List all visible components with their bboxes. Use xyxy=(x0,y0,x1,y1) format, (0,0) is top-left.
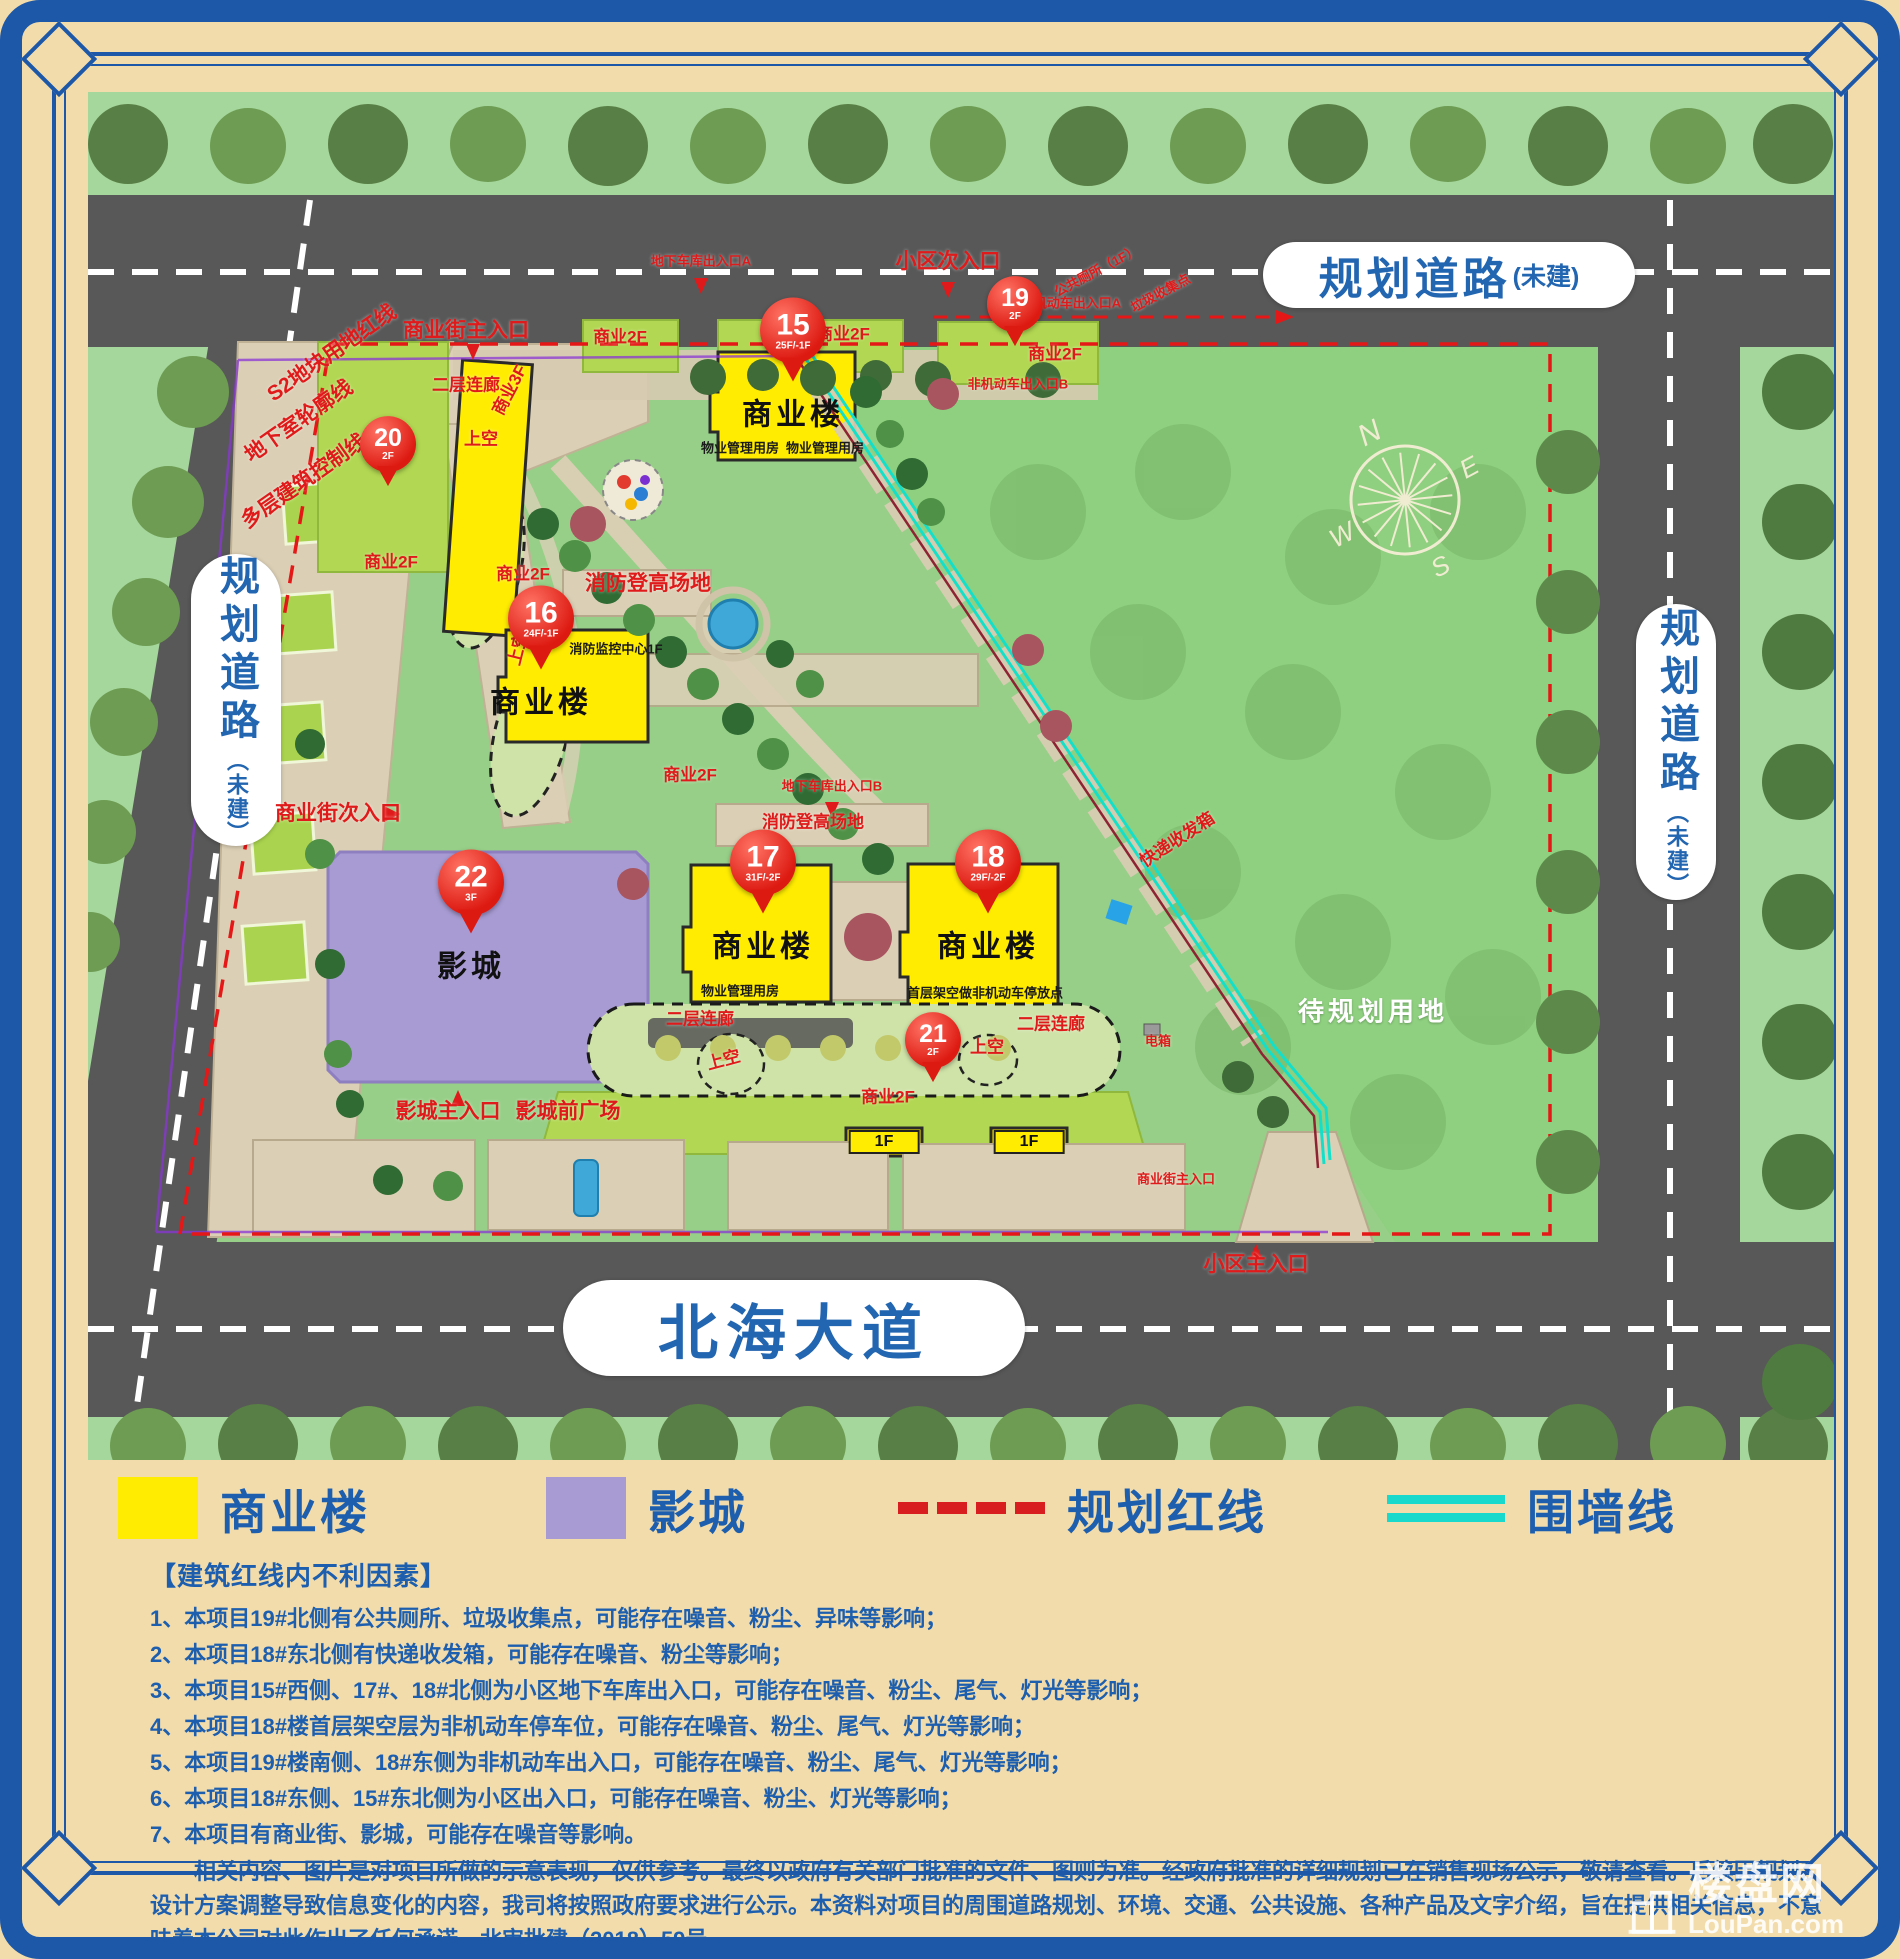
floor-tag: 1F xyxy=(994,1130,1065,1154)
road-label-left: 规划道路 （未建） xyxy=(191,554,281,846)
pin-balloon: 192F xyxy=(987,276,1043,332)
building-pin-21[interactable]: 212F xyxy=(905,1012,961,1090)
building-pin-16[interactable]: 1624F/-1F 商业楼 xyxy=(490,585,592,721)
building-pin-22[interactable]: 223F 影城 xyxy=(437,849,505,985)
building-name: 商业楼 xyxy=(937,921,1039,965)
map-label: 二层连廊 xyxy=(432,371,500,396)
legend-wallline-icon xyxy=(1387,1495,1505,1522)
pin-balloon: 1731F/-2F xyxy=(730,829,796,895)
building-name: 商业楼 xyxy=(742,389,844,433)
map-label: 小区次入口 xyxy=(896,245,1001,275)
pin-balloon: 223F xyxy=(438,849,504,915)
pin-balloon: 1624F/-1F xyxy=(508,585,574,651)
map-label: 物业管理用房 xyxy=(786,438,864,457)
map-label: 小区主入口 xyxy=(1204,1248,1309,1278)
frame-corner-ornament xyxy=(21,21,97,97)
map-label: 商业2F xyxy=(496,560,550,585)
legend-swatch-commercial xyxy=(118,1477,198,1539)
map-label: 非机动车出入口B xyxy=(968,374,1068,393)
legend-redline-icon xyxy=(898,1502,1045,1514)
pin-balloon: 212F xyxy=(905,1012,961,1068)
note-item: 3、本项目15#西侧、17#、18#北侧为小区地下车库出入口，可能存在噪音、粉尘… xyxy=(150,1673,1830,1709)
note-item: 2、本项目18#东北侧有快递收发箱，可能存在噪音、粉尘等影响； xyxy=(150,1637,1830,1673)
road-label-bottom: 北海大道 xyxy=(563,1280,1025,1376)
legend-swatch-cinema xyxy=(546,1477,626,1539)
building-name: 商业楼 xyxy=(712,921,814,965)
pin-balloon: 1829F/-2F xyxy=(955,829,1021,895)
map-label: 商业街次入口 xyxy=(275,797,401,827)
map-label: 二层连廊 xyxy=(666,1005,734,1030)
map-label: 上空 xyxy=(970,1033,1004,1058)
loupan-logo-icon xyxy=(1626,1885,1678,1937)
watermark: 楼盘网 LouPan.com xyxy=(1626,1863,1844,1937)
disclaimer: 相关内容、图片是对项目所做的示意表现，仅供参考。最终以政府有关部门批准的文件、图… xyxy=(150,1855,1830,1957)
pond xyxy=(709,600,757,648)
map-label: 商业街主入口 xyxy=(1137,1169,1215,1188)
note-item: 1、本项目19#北侧有公共厕所、垃圾收集点，可能存在噪音、粉尘、异味等影响； xyxy=(150,1601,1830,1637)
map-label: 上空 xyxy=(464,425,498,450)
map-label: 电箱 xyxy=(1145,1031,1171,1050)
pin-balloon: 202F xyxy=(360,416,416,472)
frame-corner-ornament xyxy=(21,1830,97,1906)
map-label: 商业2F xyxy=(364,548,418,573)
note-item: 5、本项目19#楼南侧、18#东侧为非机动车出入口，可能存在噪音、粉尘、尾气、灯… xyxy=(150,1745,1830,1781)
building-pin-17[interactable]: 1731F/-2F 商业楼 xyxy=(712,829,814,965)
map-label: 物业管理用房 xyxy=(701,438,779,457)
legend-label: 围墙线 xyxy=(1527,1474,1677,1543)
building-name: 影城 xyxy=(437,941,505,985)
road-label-top: 规划道路 (未建) xyxy=(1263,242,1635,308)
road-label-right: 规划道路 （未建） xyxy=(1636,604,1716,900)
note-item: 7、本项目有商业街、影城，可能存在噪音等影响。 xyxy=(150,1817,1830,1853)
building-pin-20[interactable]: 202F xyxy=(360,416,416,494)
map-label: 消防登高场地 xyxy=(585,567,711,597)
map-label: 影城主入口 xyxy=(396,1095,501,1125)
notes-block: 【建筑红线内不利因素】 1、本项目19#北侧有公共厕所、垃圾收集点，可能存在噪音… xyxy=(150,1556,1830,1957)
map-label: 物业管理用房 xyxy=(701,981,779,1000)
legend-label: 商业楼 xyxy=(220,1474,370,1543)
watermark-title: 楼盘网 xyxy=(1688,1863,1826,1907)
legend-label: 规划红线 xyxy=(1067,1474,1267,1543)
legend: 商业楼 影城 规划红线 围墙线 xyxy=(110,1472,1790,1544)
playground xyxy=(603,460,663,520)
map-label: 商业2F xyxy=(663,761,717,786)
watermark-subtitle: LouPan.com xyxy=(1688,1911,1844,1937)
map-label: 二层连廊 xyxy=(1017,1010,1085,1035)
pending-land-label: 待规划用地 xyxy=(1298,992,1448,1029)
map-label: 商业街主入口 xyxy=(403,314,529,344)
notes-header: 【建筑红线内不利因素】 xyxy=(150,1556,1830,1593)
building-name: 商业楼 xyxy=(490,677,592,721)
building-pin-15[interactable]: 1525F/-1F 商业楼 xyxy=(742,297,844,433)
legend-label: 影城 xyxy=(648,1474,748,1543)
site-plan-map: N E S W 规划道路 (未建) 规划道路 （未建） 规划道路 （未建） 北海… xyxy=(88,92,1836,1460)
map-label: 地下车库出入口A xyxy=(651,251,751,270)
pin-balloon: 1525F/-1F xyxy=(760,297,826,363)
frame-corner-ornament xyxy=(1803,21,1879,97)
map-label: 地下车库出入口B xyxy=(782,776,882,795)
building-pin-19[interactable]: 192F xyxy=(987,276,1043,354)
note-item: 6、本项目18#东侧、15#东北侧为小区出入口，可能存在噪音、粉尘、灯光等影响； xyxy=(150,1781,1830,1817)
map-label: 首层架空做非机动车停放点 xyxy=(907,983,1063,1002)
note-item: 4、本项目18#楼首层架空层为非机动车停车位，可能存在噪音、粉尘、尾气、灯光等影… xyxy=(150,1709,1830,1745)
building-pin-18[interactable]: 1829F/-2F 商业楼 xyxy=(937,829,1039,965)
map-label: 商业2F xyxy=(593,323,647,348)
map-label: 影城前广场 xyxy=(516,1095,621,1125)
floor-tag: 1F xyxy=(849,1130,920,1154)
